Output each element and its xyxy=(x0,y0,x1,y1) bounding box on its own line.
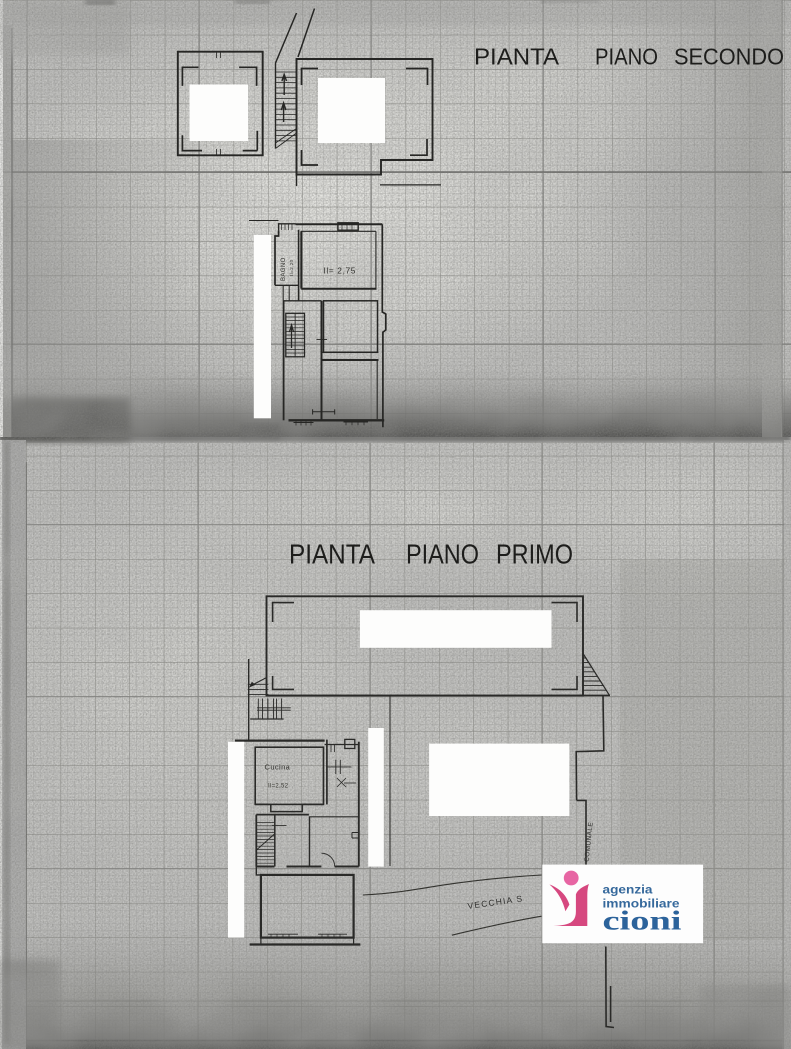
svg-text:cioni: cioni xyxy=(603,906,683,936)
svg-text:Cucina: Cucina xyxy=(265,763,291,772)
svg-text:PIANTA: PIANTA xyxy=(474,44,559,70)
svg-text:PIANO: PIANO xyxy=(406,539,479,570)
svg-text:SECONDO: SECONDO xyxy=(674,44,784,70)
svg-text:PRIMO: PRIMO xyxy=(496,539,573,570)
svg-text:Il=2,20: Il=2,20 xyxy=(289,259,295,276)
svg-text:Il=2,52: Il=2,52 xyxy=(268,784,289,790)
svg-text:agenzia: agenzia xyxy=(603,883,653,897)
svg-text:PIANTA: PIANTA xyxy=(289,539,375,570)
svg-text:PIANO: PIANO xyxy=(595,44,658,70)
svg-text:BAGNO: BAGNO xyxy=(281,257,287,281)
svg-text:Il= 2,75: Il= 2,75 xyxy=(324,266,357,276)
